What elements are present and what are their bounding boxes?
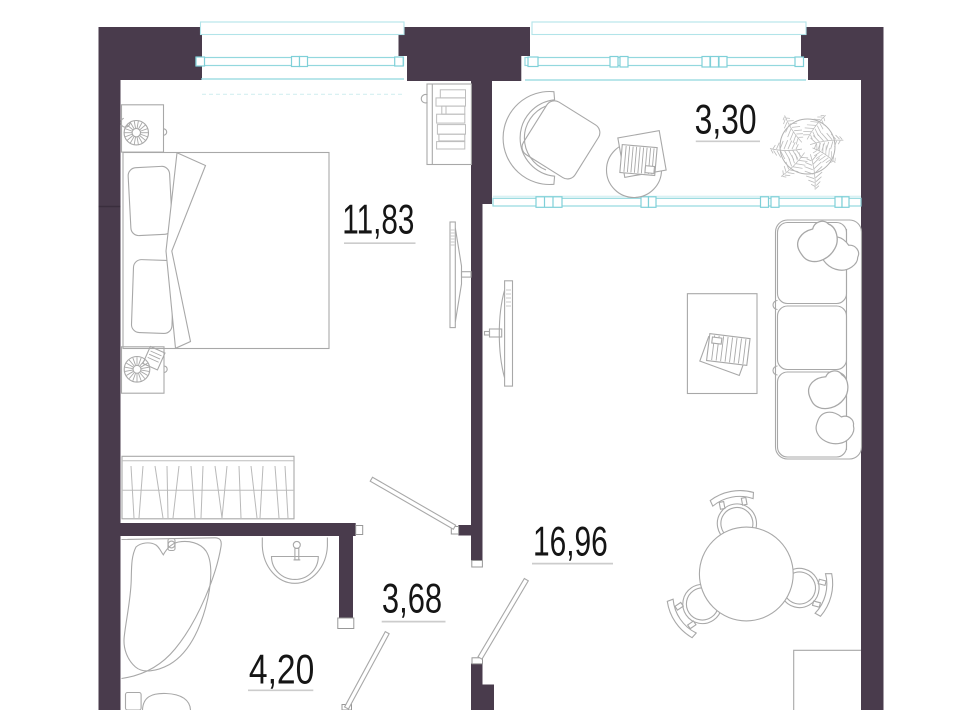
svg-text:11,83: 11,83 — [342, 195, 414, 242]
svg-text:4,20: 4,20 — [249, 647, 314, 693]
svg-text:16,96: 16,96 — [533, 517, 608, 564]
svg-text:3,68: 3,68 — [382, 575, 442, 622]
svg-text:3,30: 3,30 — [695, 95, 757, 142]
